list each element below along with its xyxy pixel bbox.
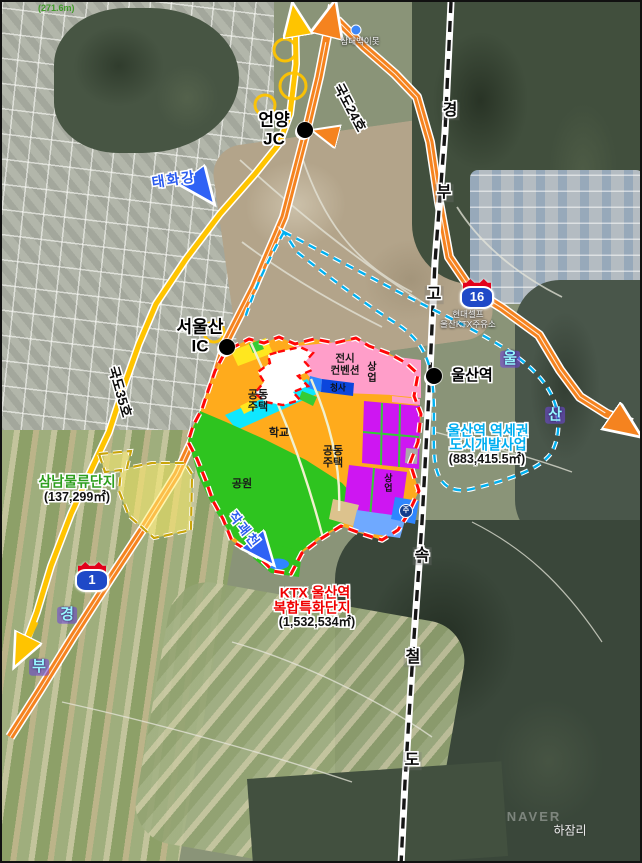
ktx-zone-area: (1,532,534㎡) <box>279 616 355 630</box>
map-overlay-svg <box>2 2 642 863</box>
samnam-zone-area: (137,299㎡) <box>44 491 110 505</box>
parcel-park-label: 공원 <box>232 478 252 490</box>
rail-letter-1: 경 <box>441 102 460 120</box>
station-district-name-2: 도시개발사업 <box>449 437 526 452</box>
ktx-zone-name-2: 복합특화단지 <box>273 600 350 615</box>
ulsan-station-marker[interactable] <box>426 368 442 384</box>
naver-watermark: NAVER <box>507 810 562 824</box>
rail-letter-5: 철 <box>404 649 423 667</box>
pond-label: 삼대백이못 <box>340 37 379 47</box>
parking-icon: 주 <box>399 504 413 518</box>
samnam-zone-name: 삼남물류단지 <box>38 474 115 489</box>
parcel-commercial-top-label: 상업 <box>365 361 376 383</box>
rail-letter-2: 부 <box>435 184 454 202</box>
ktx-complex-parcels <box>188 337 421 577</box>
parcel-school-label: 학교 <box>269 427 289 439</box>
expressway-16-shield: 16 <box>460 279 494 309</box>
eonyang-jc-label: 언양 JC <box>258 111 289 148</box>
gas-station-label: 현대셀프 울산KTX주유소 <box>440 310 496 330</box>
expressway-1-shield: 1 <box>75 562 109 592</box>
parcel-apartment-left-label: 공동주택 <box>248 389 268 413</box>
parcel-convention-label: 전시컨벤션 <box>331 353 360 376</box>
gyeongbu-expwy-letter-1: 경 <box>57 607 77 624</box>
elevation-label: (271.6m) <box>38 4 75 14</box>
satellite-map-canvas[interactable]: (271.6m) 삼대백이못 국도24호 국도35호 언양 JC 태화강 서울산… <box>0 0 642 863</box>
parcel-commercial-mid-label: 상업 <box>382 473 392 493</box>
village-label: 하잠리 <box>553 824 586 837</box>
parcel-gov-office-label: 청사 <box>330 383 346 392</box>
parcel-apartment-center-label: 공동주택 <box>323 445 343 469</box>
seoulsan-ic-label: 서울산 IC <box>177 318 224 355</box>
ulsan-expwy-letter-1: 울 <box>500 351 520 368</box>
gyeongbu-expwy-letter-2: 부 <box>29 659 49 676</box>
rail-letter-6: 도 <box>403 752 422 770</box>
samnam-logistics-zone <box>99 451 192 538</box>
ulsan-station-label: 울산역 <box>451 368 492 385</box>
rail-letter-4: 속 <box>413 547 432 565</box>
rail-letter-3: 고 <box>425 286 444 304</box>
eonyang-jc-marker[interactable] <box>297 122 313 138</box>
pond-poi-marker <box>351 25 362 36</box>
station-district-area: (883,415.5㎡) <box>449 453 525 467</box>
seoulsan-ic-marker[interactable] <box>219 339 235 355</box>
ulsan-expwy-letter-2: 산 <box>545 407 565 424</box>
